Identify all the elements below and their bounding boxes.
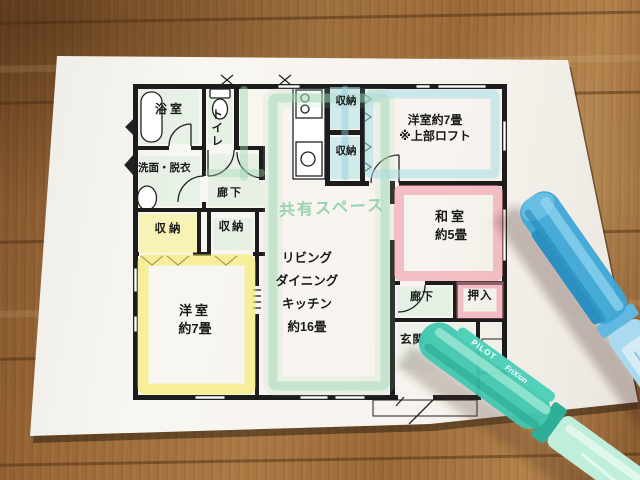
room-label-washroom: 洗面・脱衣 — [138, 162, 191, 174]
room-label-genkan: 玄関 — [400, 334, 425, 347]
room-label-oshiire: 押入 — [457, 290, 503, 303]
storage-label: 収納 — [209, 221, 255, 234]
room-label-bath: 浴室 — [155, 103, 185, 117]
wood-grain-line — [0, 10, 640, 25]
room-label-hallway-upper: 廊下 — [217, 187, 243, 200]
shoe-cabinet-icon — [482, 339, 503, 367]
room-label-ldk-line2: ダイニング — [257, 270, 357, 293]
storage-label: 収納 — [143, 223, 195, 236]
room-label-bedroom: 洋室 — [147, 302, 243, 320]
storage-label: 収納 — [329, 95, 363, 107]
room-label-loft-line1: 洋室約7畳 — [375, 112, 495, 128]
room-label-toilet: トイレ — [209, 108, 222, 149]
room-label-ldk-line3: キッチン — [257, 293, 357, 316]
toilet-tank-icon — [210, 89, 230, 98]
entry-door-swing — [396, 397, 433, 424]
washbasin-icon — [138, 186, 157, 210]
bathtub-icon — [141, 92, 162, 142]
room-label-washitsu: 和室 — [405, 208, 497, 226]
sink-basin-icon — [301, 152, 315, 166]
floorplan-paper: 浴室 トイレ 洗面・脱衣 廊下 収納 収納 収納 収納 洋室 約7畳 リビング … — [0, 0, 640, 480]
room-label-ldk-line4: 約16畳 — [257, 316, 357, 339]
wood-grain-line — [0, 452, 640, 467]
photo-of-floorplan: 浴室 トイレ 洗面・脱衣 廊下 収納 収納 収納 収納 洋室 約7畳 リビング … — [0, 0, 640, 480]
room-size-bedroom: 約7畳 — [147, 320, 243, 338]
room-label-ldk-line1: リビング — [257, 247, 357, 270]
room-label-loft-line2: ※上部ロフト — [375, 128, 495, 144]
room-size-washitsu: 約5畳 — [405, 226, 497, 244]
storage-label: 収納 — [329, 145, 363, 157]
floorplan-drawing: 浴室 トイレ 洗面・脱衣 廊下 収納 収納 収納 収納 洋室 約7畳 リビング … — [133, 84, 509, 430]
room-label-hallway-lower: 廊下 — [395, 291, 449, 304]
